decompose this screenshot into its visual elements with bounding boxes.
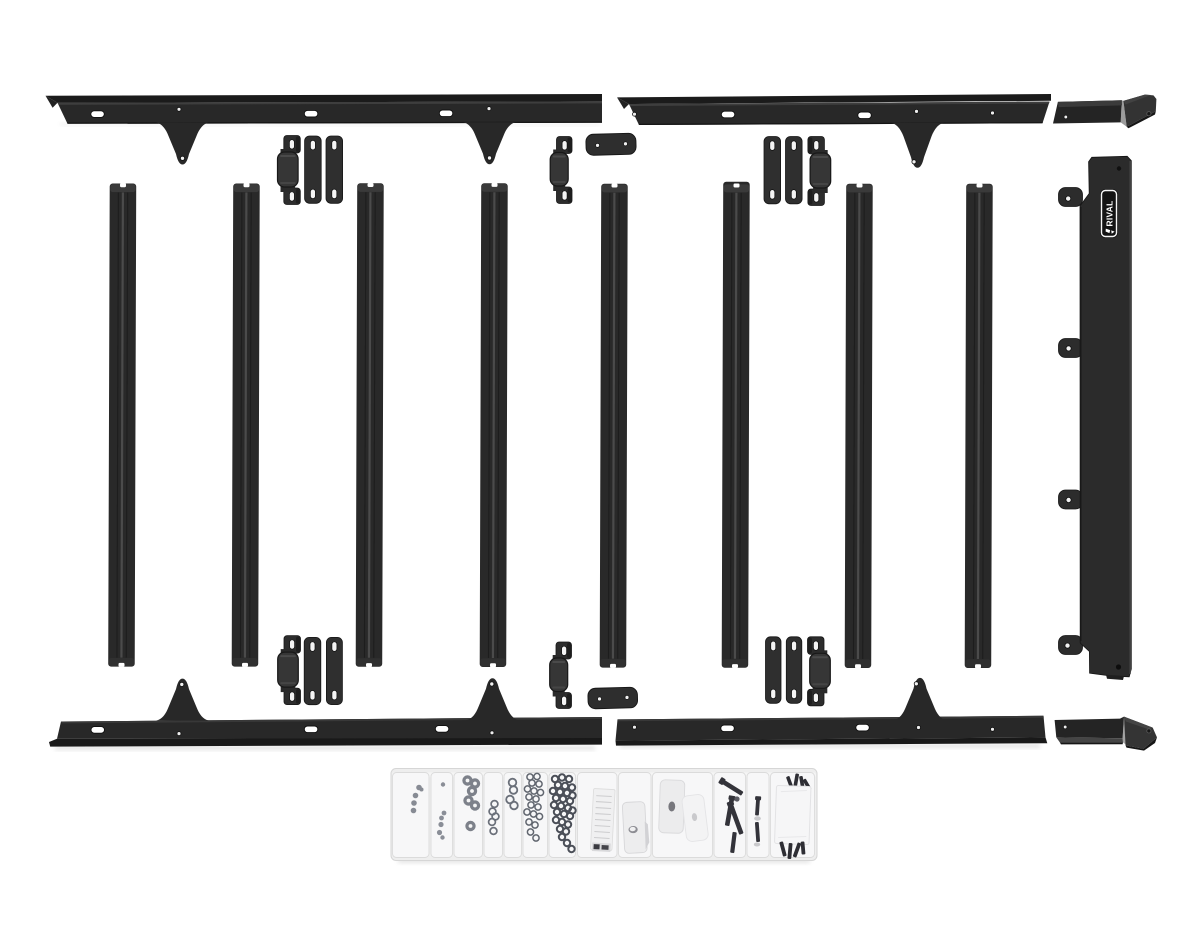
svg-text:RIVAL: RIVAL	[1104, 200, 1114, 226]
